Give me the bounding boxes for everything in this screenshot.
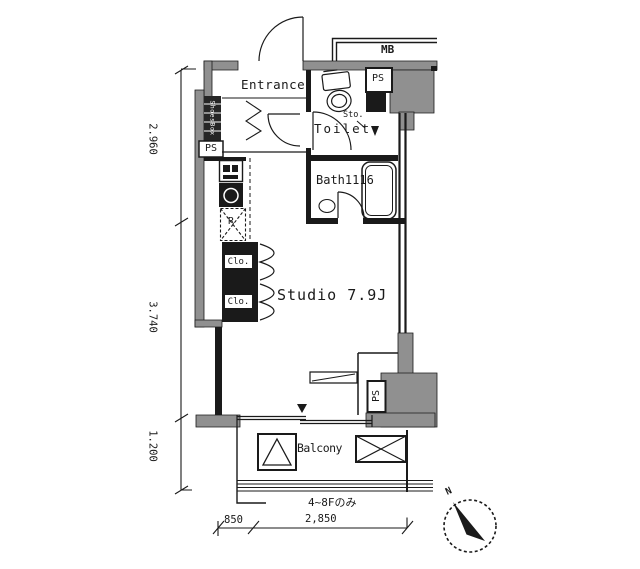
stove-icon	[220, 161, 243, 182]
bath-label: Bath1116	[316, 174, 374, 186]
ps-left-label: PS	[205, 144, 217, 154]
entrance-door	[259, 17, 303, 61]
dim-bottom-2: 2,850	[305, 514, 337, 525]
closet-doors	[260, 244, 274, 320]
ps-bottom-label: PS	[372, 390, 382, 402]
evacuation-hatch-icon	[258, 434, 296, 470]
bath-washbasin	[319, 200, 335, 213]
pipe-space-boxes	[199, 68, 392, 412]
floor-plan: Entrance Sto. Toilet Bath1116 Studio 7.9…	[0, 0, 640, 569]
bath-door	[338, 192, 364, 218]
north-arrow-icon	[453, 502, 485, 541]
meter-box-label: MB	[381, 44, 394, 55]
sink-icon	[219, 183, 243, 207]
closet-label: Clo.	[228, 297, 250, 307]
studio-door	[268, 114, 300, 146]
shoesbox-doors	[246, 101, 261, 140]
kitchen-unit	[219, 161, 246, 241]
balcony-label: Balcony	[297, 443, 342, 455]
refrigerator-label: R	[228, 217, 234, 227]
shoes-box-label: ShoesBox	[209, 100, 216, 135]
toilet-label: Toilet	[314, 123, 371, 136]
dim-left-2: 3.740	[147, 301, 158, 333]
window-marker-icon	[297, 404, 307, 413]
dim-left-1: 2.960	[147, 123, 158, 155]
table-icon	[310, 372, 357, 383]
closet-chip: Clo.	[225, 255, 252, 268]
toilet-fixture	[321, 69, 353, 113]
dim-bottom-1: 850	[224, 515, 243, 526]
floor-range-note: 4~8Fのみ	[308, 497, 357, 508]
ac-unit-icon	[356, 436, 406, 462]
ps-top-label: PS	[372, 74, 384, 84]
closet-chip: Clo.	[225, 295, 252, 308]
dim-left-3: 1.200	[147, 430, 158, 462]
compass	[444, 500, 496, 552]
toilet-storage-label: Sto.	[343, 111, 363, 120]
studio-label: Studio 7.9J	[277, 288, 387, 303]
bathtub	[362, 162, 396, 219]
toilet-mark-icon	[371, 126, 379, 136]
entrance-label: Entrance	[241, 79, 305, 92]
plan-linework	[0, 0, 640, 569]
window	[237, 415, 372, 427]
closet-label: Clo.	[228, 257, 250, 267]
